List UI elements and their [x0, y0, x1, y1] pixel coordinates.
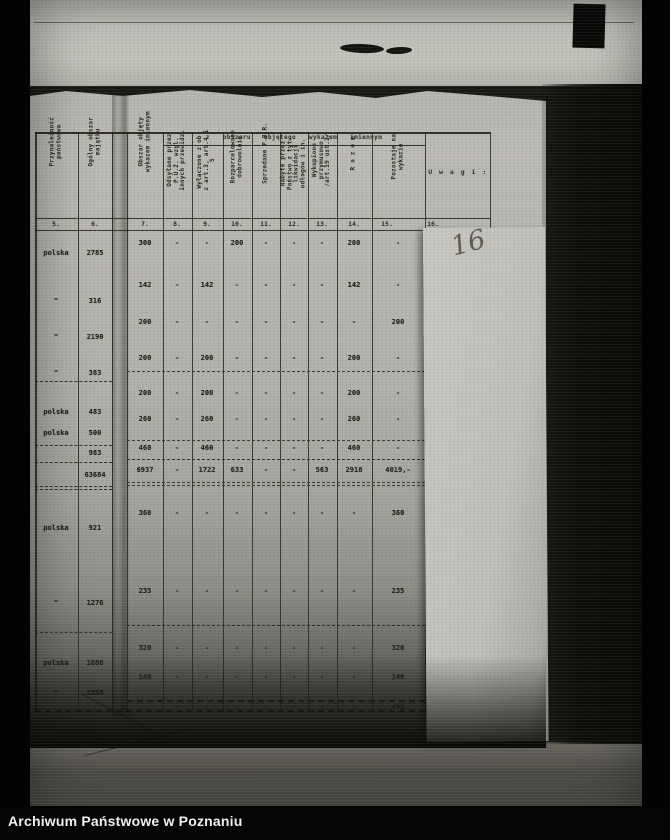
- table-cell: 200: [201, 354, 214, 362]
- cell-nationality: polska: [43, 408, 68, 416]
- row-separator-dashed: [35, 462, 112, 463]
- table-cell: -: [352, 509, 356, 517]
- table-cell: -: [320, 415, 324, 423]
- table-cell: -: [175, 239, 179, 247]
- table-cell: -: [292, 509, 296, 517]
- table-cell: -: [352, 644, 356, 652]
- col-header-8: Odsyłane przez P.U.Z. wzgl. innych przew…: [167, 128, 187, 192]
- table-cell: 563: [316, 466, 329, 474]
- table-cell: 460: [348, 444, 361, 452]
- col-number: 15.: [381, 220, 393, 228]
- table-cell: -: [175, 354, 179, 362]
- table-cell: -: [320, 281, 324, 289]
- table-cell: 260: [139, 415, 152, 423]
- pencil-page-number: 16: [448, 224, 489, 263]
- table-cell: -: [396, 239, 400, 247]
- row-separator-dashed: [35, 486, 112, 487]
- table-cell: 460: [201, 444, 214, 452]
- col-number: 10.: [231, 220, 243, 228]
- scanned-archive-page: z obszaru objętego wykazem imiennymPrzyn…: [0, 0, 670, 840]
- col-header-6: Ogólny obszar majątku: [88, 102, 101, 182]
- cell-total-area: 2190: [87, 333, 104, 341]
- table-rule-vertical: [78, 132, 79, 712]
- table-cell: 4019,-: [385, 466, 410, 474]
- table-cell: -: [396, 354, 400, 362]
- table-cell: -: [396, 281, 400, 289]
- table-cell: 633: [231, 466, 244, 474]
- table-cell: -: [205, 587, 209, 595]
- table-cell: 235: [139, 587, 152, 595]
- cell-nationality: ": [54, 369, 58, 377]
- col-number: 16.: [427, 220, 439, 228]
- table-cell: -: [205, 644, 209, 652]
- table-cell: -: [396, 389, 400, 397]
- table-cell: -: [205, 239, 209, 247]
- table-cell: -: [175, 415, 179, 423]
- col-number: 5.: [52, 220, 60, 228]
- table-cell: -: [264, 354, 268, 362]
- col-number: 9.: [203, 220, 211, 228]
- table-cell: 235: [392, 587, 405, 595]
- table-cell: -: [292, 318, 296, 326]
- table-cell: -: [352, 587, 356, 595]
- table-cell: 200: [139, 354, 152, 362]
- cell-total-area: 2785: [87, 249, 104, 257]
- col-header-16: U w a g i :: [427, 168, 489, 176]
- table-rule-numbering-bottom: [35, 230, 490, 231]
- table-cell: -: [264, 444, 268, 452]
- cell-total-area: 983: [89, 449, 102, 457]
- table-cell: 320: [392, 644, 405, 652]
- table-cell: 260: [348, 415, 361, 423]
- table-cell: -: [396, 415, 400, 423]
- table-cell: -: [320, 587, 324, 595]
- col-number: 7.: [141, 220, 149, 228]
- table-cell: 6937: [137, 466, 154, 474]
- col-number: 8.: [173, 220, 181, 228]
- row-separator-dashed: [35, 632, 112, 633]
- table-cell: -: [320, 318, 324, 326]
- table-cell: -: [320, 644, 324, 652]
- archive-caption: Archiwum Państwowe w Poznaniu: [8, 813, 243, 829]
- sheet-shadow: [542, 84, 642, 744]
- table-cell: 460: [139, 444, 152, 452]
- table-cell: -: [292, 444, 296, 452]
- table-cell: -: [352, 318, 356, 326]
- table-cell: -: [175, 318, 179, 326]
- table-cell: 200: [348, 239, 361, 247]
- table-cell: -: [320, 444, 324, 452]
- col-number: 14.: [348, 220, 360, 228]
- row-separator-dashed: [35, 445, 112, 446]
- table-cell: -: [292, 281, 296, 289]
- table-cell: 260: [201, 415, 214, 423]
- archive-caption-bar: Archiwum Państwowe w Poznaniu: [0, 806, 670, 840]
- table-cell: 200: [348, 354, 361, 362]
- cell-total-area: 1276: [87, 599, 104, 607]
- table-cell: -: [292, 415, 296, 423]
- cell-nationality: polska: [43, 429, 68, 437]
- table-cell: -: [264, 281, 268, 289]
- table-cell: 360: [392, 509, 405, 517]
- cell-nationality: ": [54, 297, 58, 305]
- table-cell: 142: [139, 281, 152, 289]
- table-rule-vertical: [35, 132, 37, 712]
- col-header-10: Rozparcelowane dobrowolnie: [230, 125, 243, 189]
- col-header-15: Pozostaje na wykazie: [391, 125, 404, 189]
- table-cell: -: [292, 389, 296, 397]
- table-cell: -: [175, 509, 179, 517]
- table-cell: -: [175, 389, 179, 397]
- cell-total-area: 383: [89, 369, 102, 377]
- cell-nationality: ": [54, 599, 58, 607]
- col-header-7: Obszar objęty wykazem imiennym: [138, 102, 151, 182]
- table-cell: -: [264, 509, 268, 517]
- col-number: 13.: [316, 220, 328, 228]
- table-cell: -: [235, 354, 239, 362]
- table-cell: -: [320, 509, 324, 517]
- col-header-9: Wyłączone z ob. z art.3, art.4 i 5: [197, 128, 217, 192]
- table-cell: 2918: [346, 466, 363, 474]
- table-cell: -: [175, 466, 179, 474]
- table-cell: -: [235, 415, 239, 423]
- table-cell: -: [235, 281, 239, 289]
- table-cell: -: [396, 444, 400, 452]
- table-cell: -: [205, 318, 209, 326]
- table-cell: -: [320, 239, 324, 247]
- col-header-14: R a z e m: [351, 121, 358, 185]
- table-cell: -: [235, 644, 239, 652]
- table-cell: 200: [201, 389, 214, 397]
- table-cell: -: [264, 239, 268, 247]
- table-cell: -: [264, 644, 268, 652]
- page-fold: [112, 95, 129, 715]
- table-cell: -: [292, 239, 296, 247]
- table-cell: -: [175, 444, 179, 452]
- cell-total-area: 500: [89, 429, 102, 437]
- col-number: 11.: [260, 220, 272, 228]
- film-notch: [572, 4, 605, 49]
- table-cell: -: [175, 281, 179, 289]
- table-cell: 320: [139, 644, 152, 652]
- col-number: 12.: [288, 220, 300, 228]
- table-cell: -: [235, 318, 239, 326]
- bottom-shadow: [30, 655, 546, 748]
- table-cell: -: [235, 587, 239, 595]
- table-cell: -: [264, 587, 268, 595]
- row-separator-dashed: [127, 485, 425, 486]
- table-rule-numbering-top: [35, 218, 490, 219]
- row-separator-dashed: [35, 489, 112, 490]
- cell-nationality: polska: [43, 524, 68, 532]
- photograph-area: z obszaru objętego wykazem imiennymPrzyn…: [30, 0, 642, 810]
- table-cell: -: [320, 389, 324, 397]
- table-cell: -: [292, 466, 296, 474]
- backing-board-top: [30, 0, 642, 86]
- cell-nationality: polska: [43, 249, 68, 257]
- table-cell: 200: [139, 389, 152, 397]
- table-cell: -: [205, 509, 209, 517]
- cell-total-area: 921: [89, 524, 102, 532]
- table-cell: -: [292, 644, 296, 652]
- col-number: 6.: [91, 220, 99, 228]
- table-cell: -: [292, 354, 296, 362]
- table-cell: 200: [348, 389, 361, 397]
- table-cell: -: [264, 318, 268, 326]
- table-cell: -: [175, 587, 179, 595]
- table-cell: 142: [201, 281, 214, 289]
- table-cell: 200: [392, 318, 405, 326]
- table-cell: 200: [231, 239, 244, 247]
- table-cell: -: [235, 389, 239, 397]
- cell-total-area: 316: [89, 297, 102, 305]
- col-header-5: Przynależność państwowa: [49, 102, 62, 182]
- table-rule-vertical: [490, 132, 491, 230]
- backing-board-bottom: [30, 742, 642, 810]
- row-separator-dashed: [35, 381, 112, 382]
- col-header-12: Nabyte przez Państwo z tyt. likwidacji o…: [281, 131, 308, 195]
- table-cell: -: [235, 444, 239, 452]
- board-edge-line: [34, 22, 634, 23]
- row-separator-dashed: [127, 625, 425, 626]
- table-cell: -: [264, 466, 268, 474]
- row-separator-dashed: [127, 459, 425, 460]
- table-cell: -: [264, 389, 268, 397]
- row-separator-dashed: [127, 371, 425, 372]
- cell-total-area: 63684: [84, 471, 105, 479]
- table-cell: 200: [139, 318, 152, 326]
- table-cell: 142: [348, 281, 361, 289]
- col-header-13: Wykupione przymusowo /art.19 ust.2/: [312, 128, 332, 192]
- table-cell: -: [292, 587, 296, 595]
- cell-total-area: 483: [89, 408, 102, 416]
- table-cell: -: [264, 415, 268, 423]
- table-cell: 360: [139, 509, 152, 517]
- col-header-11: Sprzedane P.B.R.: [263, 121, 270, 185]
- row-separator-dashed: [127, 482, 425, 483]
- table-cell: -: [175, 644, 179, 652]
- table-cell: 300: [139, 239, 152, 247]
- row-separator-dashed: [127, 440, 425, 441]
- table-cell: -: [235, 509, 239, 517]
- cell-nationality: ": [54, 333, 58, 341]
- table-cell: -: [320, 354, 324, 362]
- table-cell: 1722: [199, 466, 216, 474]
